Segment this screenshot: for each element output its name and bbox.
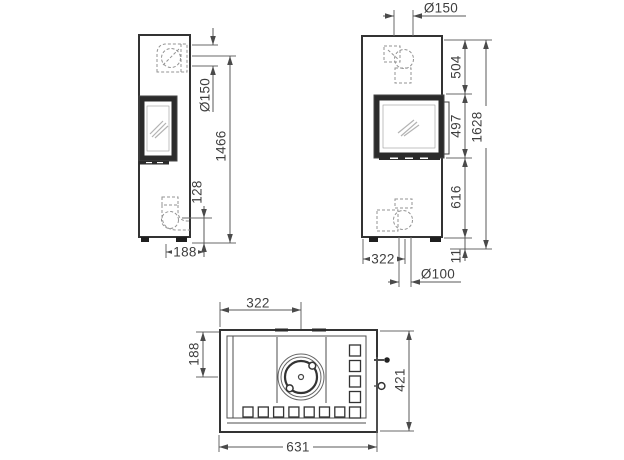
dim-label-front-window-height: 497 [449,114,464,137]
top-dim-flue-offset-x: 322 [220,296,301,311]
technical-drawing-canvas: Ø150 1466 128 188 [0,0,624,460]
dim-label-front-total-height: 1628 [470,111,485,142]
dim-label-front-outlet-offset: 322 [371,252,394,267]
front-dim-total-height: 1628 [470,40,494,249]
top-flue-center-hole [299,375,304,380]
top-handle-knob [384,357,390,363]
dim-label-front-top-to-window: 504 [449,55,464,79]
dim-label-top-flue-offset-x: 322 [246,296,269,311]
front-dim-base-height: 11 [449,238,466,263]
dim-label-top-width: 631 [286,440,309,455]
dim-label-side-flue-height: 1466 [214,130,229,161]
dim-label-front-air-inlet-diameter: Ø100 [421,267,455,282]
dim-label-side-air-inlet-height: 128 [190,180,205,203]
side-dim-flue-height: 1466 [214,56,231,243]
top-dim-flue-offset-y: 188 [187,332,204,377]
top-flue-clip-sw [286,385,293,392]
front-dim-top-to-window: 504 [449,40,466,94]
side-dim-outlet-depth: 188 [166,245,204,260]
dim-label-side-flue-diameter: Ø150 [198,78,213,112]
top-handle-latch [378,383,385,390]
front-foot-left [369,237,378,242]
front-view: Ø150 504 497 616 11 16 [362,1,493,288]
dim-label-top-flue-offset-y: 188 [187,342,202,365]
front-dim-flue-diameter: Ø150 [383,1,466,17]
dim-label-top-depth: 421 [393,368,408,391]
side-dim-flue-diameter: Ø150 [198,28,214,112]
top-dim-depth: 421 [393,331,410,431]
front-dim-window-to-base: 616 [449,158,466,238]
front-window [374,95,449,160]
front-foot-right [430,237,441,242]
top-flue-clip-ne [309,362,316,369]
dim-label-front-base-height: 11 [449,249,464,264]
top-flue-collar [278,354,324,400]
side-window [139,96,177,165]
side-foot-right [176,237,187,242]
dim-label-front-flue-diameter: Ø150 [424,1,458,16]
side-view: Ø150 1466 128 188 [139,28,236,260]
side-foot-left [141,237,149,242]
top-view: 322 188 421 631 [187,296,415,455]
top-dim-width: 631 [219,440,377,455]
dim-label-front-window-to-base: 616 [449,185,464,208]
stove-dimension-drawing: Ø150 1466 128 188 [0,0,624,460]
front-dim-window-height: 497 [449,94,466,158]
dim-label-side-outlet-depth: 188 [173,245,196,260]
